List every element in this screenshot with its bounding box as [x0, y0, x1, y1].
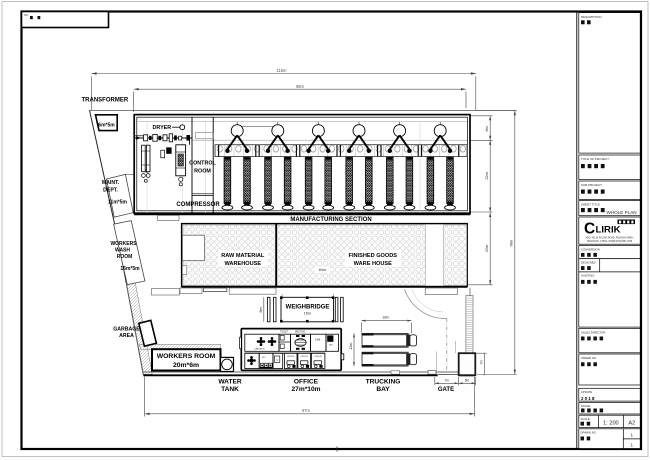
- svg-text:DRAWN NO.: DRAWN NO.: [581, 431, 597, 435]
- svg-text:8m: 8m: [259, 307, 263, 312]
- svg-text:ROOM: ROOM: [117, 254, 133, 260]
- svg-text:20m: 20m: [485, 245, 489, 252]
- svg-text:15m*5m: 15m*5m: [120, 266, 140, 272]
- svg-text:1: 1: [631, 433, 634, 438]
- svg-text:12m: 12m: [349, 343, 353, 350]
- svg-text:ROOM: ROOM: [194, 169, 211, 175]
- svg-text:15m: 15m: [304, 312, 311, 316]
- svg-text:DRYER: DRYER: [153, 125, 172, 131]
- svg-text:LIRIK: LIRIK: [596, 225, 621, 236]
- svg-text:98m: 98m: [296, 84, 305, 89]
- svg-text:AUDITING: AUDITING: [581, 274, 594, 278]
- svg-text:6m: 6m: [485, 126, 489, 131]
- svg-text:RAW MATERIAL: RAW MATERIAL: [221, 253, 265, 259]
- svg-text:AREA: AREA: [119, 333, 134, 339]
- svg-text:6m*5m: 6m*5m: [98, 122, 115, 128]
- svg-text:OFFICE: OFFICE: [294, 379, 319, 386]
- svg-text:FINISHED GOODS: FINISHED GOODS: [349, 253, 398, 259]
- svg-text:WC: WC: [262, 357, 266, 359]
- svg-text:TOILET: TOILET: [280, 331, 289, 333]
- svg-text:GARBAGE: GARBAGE: [113, 327, 140, 333]
- svg-text:2 0 1 8: 2 0 1 8: [581, 396, 595, 401]
- svg-text:LAB: LAB: [315, 338, 320, 342]
- svg-text:C: C: [584, 221, 595, 238]
- svg-text:WARE HOUSE: WARE HOUSE: [354, 261, 392, 267]
- svg-text:WAREHOUSE: WAREHOUSE: [224, 261, 261, 267]
- svg-text:97m: 97m: [302, 408, 311, 413]
- svg-text:NO.: NO.: [24, 13, 29, 17]
- svg-text:1: 1: [631, 443, 634, 448]
- svg-text:DEPT.: DEPT.: [103, 188, 118, 194]
- svg-text:STAGE: STAGE: [581, 404, 590, 408]
- svg-text:16m: 16m: [382, 316, 389, 320]
- svg-text:GATE: GATE: [438, 387, 454, 393]
- svg-text:84m: 84m: [319, 268, 326, 272]
- svg-text:A2: A2: [628, 421, 635, 427]
- svg-text:SHEET TITLE: SHEET TITLE: [581, 203, 600, 207]
- svg-text:78m: 78m: [510, 240, 514, 247]
- svg-text:MAINT.: MAINT.: [102, 180, 120, 186]
- svg-text:SHANGHAI, CHINA. WWW.SHCLIRIK: SHANGHAI, CHINA. WWW.SHCLIRIK.COM: [587, 240, 632, 243]
- svg-text:SUB PROJECT: SUB PROJECT: [581, 183, 602, 187]
- svg-text:CANTEEN: CANTEEN: [254, 347, 265, 350]
- svg-text:CONTROL: CONTROL: [189, 161, 216, 167]
- svg-text:WORKERS: WORKERS: [110, 241, 137, 247]
- svg-text:7m: 7m: [479, 360, 483, 365]
- svg-text:OFFICE: OFFICE: [314, 356, 322, 358]
- svg-text:REC.: REC.: [329, 345, 334, 347]
- svg-text:OFFICE: OFFICE: [301, 356, 309, 358]
- svg-text:SALES DIRECTOR: SALES DIRECTOR: [581, 330, 605, 334]
- svg-text:TITLE OF PROJECT: TITLE OF PROJECT: [581, 157, 609, 161]
- svg-text:ORDER NO.: ORDER NO.: [581, 356, 597, 360]
- svg-text:DESIGNED: DESIGNED: [581, 261, 596, 265]
- svg-text:CONVERSION: CONVERSION: [581, 247, 600, 251]
- svg-text:5m: 5m: [465, 378, 470, 382]
- svg-text:SCALE: SCALE: [581, 417, 590, 421]
- svg-text:115m: 115m: [277, 68, 288, 73]
- svg-text:27m*10m: 27m*10m: [292, 386, 321, 393]
- svg-text:OFFICE: OFFICE: [287, 356, 295, 358]
- svg-text:TRUCKING: TRUCKING: [366, 379, 401, 386]
- svg-text:TANK: TANK: [221, 386, 239, 393]
- svg-text:WASH: WASH: [115, 248, 130, 254]
- svg-text:MEETING: MEETING: [295, 331, 306, 333]
- svg-text:WEIGHBRIDGE: WEIGHBRIDGE: [286, 305, 330, 311]
- svg-text:7m: 7m: [444, 378, 449, 382]
- svg-text:ADD: NO.19 FULING ROAD, PUDONG: ADD: NO.19 FULING ROAD, PUDONG AREA,: [586, 237, 634, 240]
- svg-text:DESCRIPTION: DESCRIPTION: [581, 15, 602, 19]
- svg-text:MANUFACTURING SECTION: MANUFACTURING SECTION: [290, 217, 371, 223]
- svg-text:WATER: WATER: [218, 379, 242, 386]
- svg-text:BAY: BAY: [376, 386, 390, 393]
- svg-text:COMPRESSOR: COMPRESSOR: [176, 202, 220, 208]
- svg-text:WHOLE PLAN: WHOLE PLAN: [607, 210, 637, 215]
- svg-text:UPDATE: UPDATE: [581, 390, 592, 394]
- svg-text:22m: 22m: [485, 172, 489, 179]
- svg-text:WORKERS ROOM: WORKERS ROOM: [157, 353, 216, 360]
- svg-text:1: 200: 1: 200: [603, 421, 619, 427]
- svg-text:20m*6m: 20m*6m: [173, 362, 199, 369]
- svg-text:TRANSFORMER: TRANSFORMER: [82, 98, 129, 104]
- svg-text:11m*5m: 11m*5m: [108, 199, 127, 205]
